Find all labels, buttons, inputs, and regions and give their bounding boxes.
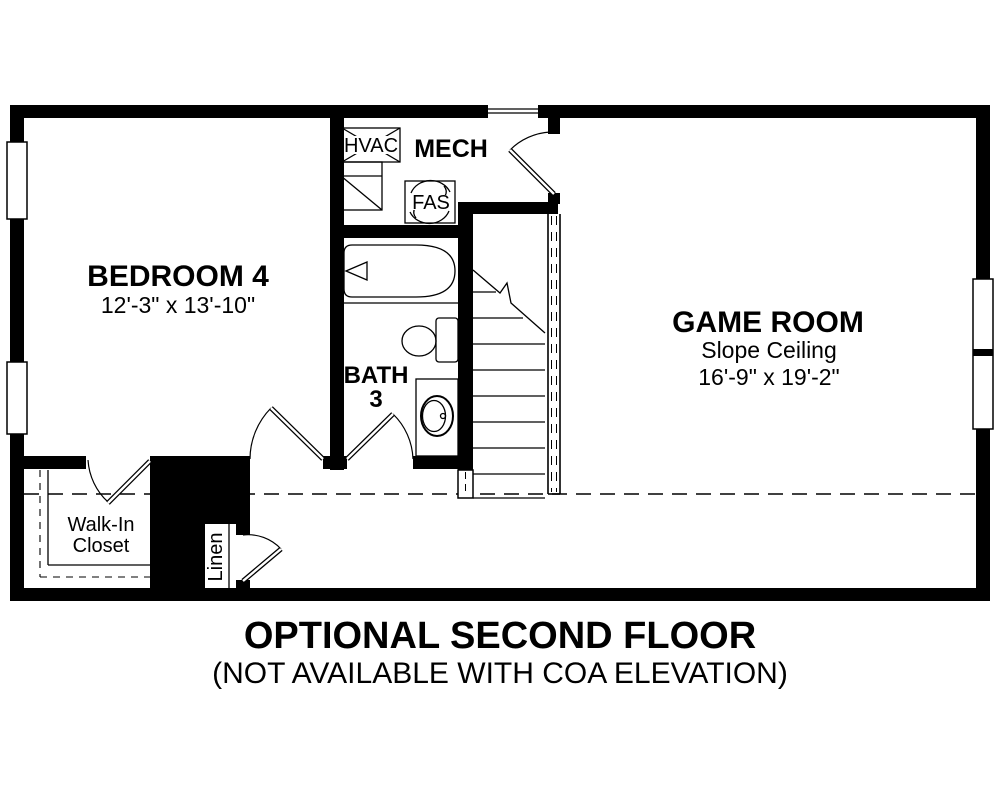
window-right-mullion: [973, 349, 993, 356]
wall-top-left: [10, 105, 488, 118]
stairs: [458, 214, 560, 498]
bath3-label: BATH: [344, 362, 409, 389]
linen-label: Linen: [205, 533, 227, 582]
toilet: [402, 318, 458, 362]
wall-bedroom-divider: [330, 117, 344, 470]
wall-stairs-top: [458, 202, 558, 214]
floor-plan-drawing: BEDROOM 4 12'-3" x 13'-10" MECH HVAC FAS…: [0, 0, 1000, 800]
game-room-label: GAME ROOM: [672, 306, 864, 339]
bedroom4-door: [250, 408, 323, 459]
window-left-upper: [7, 142, 27, 219]
top-wall-opening: [488, 109, 538, 113]
bath3-number: 3: [369, 386, 382, 413]
wall-bottom: [10, 588, 990, 601]
wall-bedroom-bottom-left: [22, 456, 86, 469]
wall-mech-bath: [330, 225, 473, 238]
caption-subtitle: (NOT AVAILABLE WITH COA ELEVATION): [212, 657, 788, 690]
window-left-lower: [7, 362, 27, 434]
mech-door: [510, 132, 554, 194]
walk-in-closet-label-line2: Closet: [73, 535, 130, 557]
bathtub: [344, 245, 458, 303]
bedroom4-label: BEDROOM 4: [87, 260, 269, 293]
mech-label: MECH: [414, 135, 488, 163]
fas-label: FAS: [412, 192, 450, 214]
caption-title: OPTIONAL SECOND FLOOR: [244, 615, 756, 657]
wall-bath-bottom: [413, 456, 458, 469]
return-air-chase: [341, 162, 382, 210]
wall-mech-door-jamb-bottom: [548, 193, 560, 204]
bath3-door: [347, 414, 413, 459]
bath-fixtures: [344, 245, 458, 456]
hvac-label: HVAC: [344, 135, 398, 157]
stairs-newel-post: [458, 470, 473, 498]
wall-bath-right: [458, 214, 473, 470]
stairs-break-line: [473, 270, 545, 333]
wall-between-doors: [323, 456, 347, 469]
floor-plan-page: BEDROOM 4 12'-3" x 13'-10" MECH HVAC FAS…: [0, 0, 1000, 800]
bedroom4-dimensions: 12'-3" x 13'-10": [101, 292, 255, 318]
game-room-dimensions: 16'-9" x 19'-2": [698, 364, 839, 390]
game-room-ceiling: Slope Ceiling: [701, 337, 837, 363]
closet-door: [88, 460, 150, 503]
stairs-railing: [548, 214, 560, 494]
walk-in-closet-label-line1: Walk-In: [67, 514, 134, 536]
vanity-sink: [416, 379, 458, 456]
wall-top-right: [538, 105, 990, 118]
tub-faucet: [346, 262, 367, 280]
walls: [10, 105, 990, 601]
